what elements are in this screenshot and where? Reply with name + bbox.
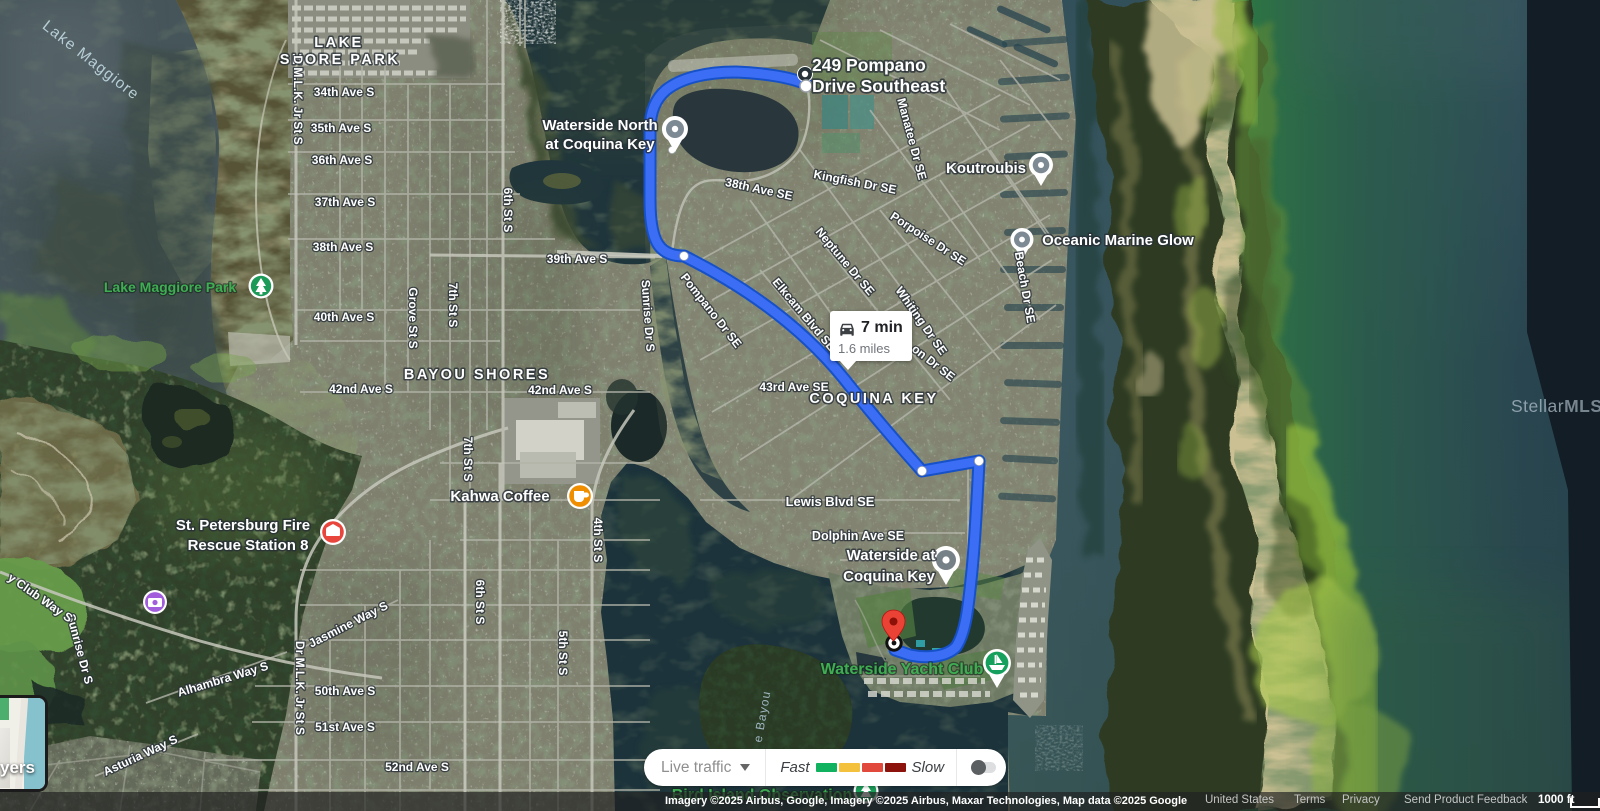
svg-text:6th St S: 6th St S	[501, 188, 515, 233]
svg-text:39th Ave S: 39th Ave S	[547, 252, 607, 266]
svg-text:35th Ave S: 35th Ave S	[311, 121, 371, 135]
svg-text:LAKE: LAKE	[314, 35, 363, 51]
svg-text:Lake Maggiore Park: Lake Maggiore Park	[104, 279, 236, 295]
svg-text:249 Pompano: 249 Pompano	[812, 55, 926, 75]
svg-text:52nd Ave S: 52nd Ave S	[385, 760, 449, 774]
svg-text:Drive Southeast: Drive Southeast	[812, 76, 945, 96]
svg-text:34th Ave S: 34th Ave S	[314, 85, 374, 99]
svg-text:37th Ave S: 37th Ave S	[315, 195, 375, 209]
svg-text:6th St S: 6th St S	[473, 580, 487, 625]
svg-text:BAYOU SHORES: BAYOU SHORES	[404, 367, 550, 383]
svg-text:42nd Ave S: 42nd Ave S	[329, 382, 393, 396]
svg-text:Waterside North: Waterside North	[542, 117, 657, 134]
svg-text:42nd Ave S: 42nd Ave S	[528, 383, 592, 397]
svg-text:40th Ave S: 40th Ave S	[314, 310, 374, 324]
svg-text:4th St S: 4th St S	[591, 518, 605, 563]
svg-text:36th Ave S: 36th Ave S	[312, 153, 372, 167]
svg-text:43rd Ave SE: 43rd Ave SE	[759, 380, 828, 394]
svg-text:Dr M.L.K. Jr St S: Dr M.L.K. Jr St S	[293, 641, 307, 735]
svg-text:St. Petersburg Fire: St. Petersburg Fire	[176, 517, 310, 534]
svg-text:7th St S: 7th St S	[461, 437, 475, 482]
svg-text:Rescue Station 8: Rescue Station 8	[188, 537, 309, 554]
svg-text:Grove St S: Grove St S	[406, 287, 420, 348]
svg-text:Waterside Yacht Club: Waterside Yacht Club	[821, 661, 984, 678]
svg-text:Lewis Blvd SE: Lewis Blvd SE	[786, 494, 875, 509]
svg-text:Koutroubis: Koutroubis	[946, 160, 1026, 177]
svg-text:Coquina Key: Coquina Key	[843, 568, 935, 585]
svg-text:Dolphin Ave SE: Dolphin Ave SE	[812, 529, 904, 543]
svg-text:D M.L.K. Jr St S: D M.L.K. Jr St S	[291, 55, 305, 144]
svg-text:at Coquina Key: at Coquina Key	[545, 136, 655, 153]
svg-text:COQUINA KEY: COQUINA KEY	[809, 391, 938, 407]
svg-text:50th Ave S: 50th Ave S	[315, 684, 375, 698]
svg-text:38th Ave S: 38th Ave S	[313, 240, 373, 254]
svg-text:51st Ave S: 51st Ave S	[315, 720, 375, 734]
svg-text:5th St S: 5th St S	[556, 631, 570, 676]
svg-text:7th St S: 7th St S	[446, 283, 460, 328]
svg-text:Kahwa Coffee: Kahwa Coffee	[450, 488, 549, 505]
svg-text:Oceanic Marine Glow: Oceanic Marine Glow	[1042, 232, 1194, 249]
svg-text:Waterside at: Waterside at	[847, 547, 936, 564]
